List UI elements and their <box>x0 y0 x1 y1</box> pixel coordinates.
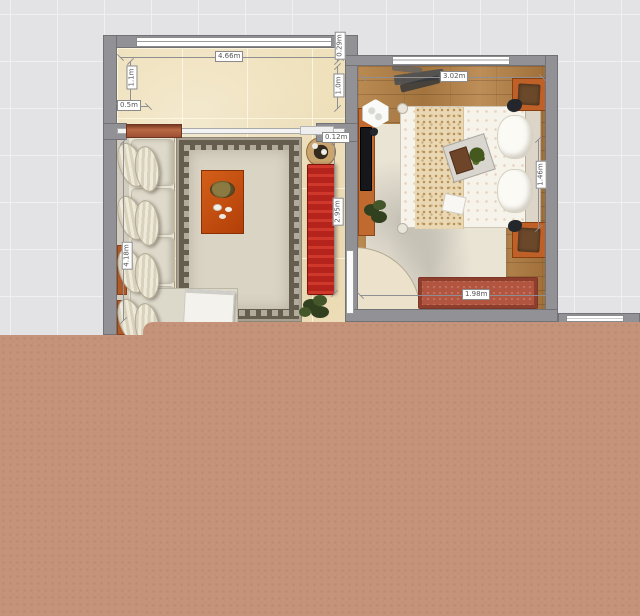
wall-left-living[interactable] <box>103 35 117 335</box>
dimension-label: 2.95m <box>333 197 344 225</box>
floor-plant-living[interactable] <box>299 293 335 323</box>
dimension-label: 1.98m <box>462 289 490 300</box>
dimension-label: 0.12m <box>322 132 350 143</box>
coffee-table[interactable] <box>201 170 244 234</box>
bed-foot-post <box>397 223 408 234</box>
dimension-label: 1.1m <box>126 66 137 90</box>
dimension-label: 4.66m <box>215 51 243 62</box>
dimension-label: 4.18m <box>122 241 133 269</box>
unrendered-area <box>143 322 640 616</box>
floor-plant-bedroom[interactable] <box>361 197 391 229</box>
dimension-label: 3.02m <box>440 71 468 82</box>
window-bottom-right[interactable] <box>566 315 624 322</box>
dimension-line <box>360 295 549 296</box>
window-bedroom-top[interactable] <box>392 56 510 65</box>
bed-foot-post <box>397 103 408 114</box>
dimension-line <box>123 141 124 321</box>
wall-bottom-bedroom[interactable] <box>345 309 558 322</box>
sofa-pillow-set[interactable] <box>119 140 165 192</box>
bedroom-door[interactable] <box>346 250 354 314</box>
dimension-label: 1.0m <box>333 74 344 98</box>
sofa-pillow-set[interactable] <box>119 193 165 245</box>
dimension-label: 1.46m <box>536 160 547 188</box>
television[interactable] <box>360 127 372 191</box>
tv-cabinet-red[interactable] <box>307 164 335 295</box>
tea-cups <box>312 143 318 149</box>
decor-stones[interactable] <box>213 204 222 211</box>
bed-pillow <box>497 115 533 159</box>
entry-console[interactable] <box>126 124 182 138</box>
double-bed[interactable] <box>400 106 538 228</box>
window-living-top[interactable] <box>136 37 332 47</box>
bed-pillow <box>497 169 533 213</box>
wall-right-bedroom[interactable] <box>545 55 558 323</box>
folded-blanket[interactable] <box>183 289 235 326</box>
floorplan-canvas: 4.66m 1.1m 0.5m 0.29m 1.0m 3.02m 4.18m 2… <box>0 0 640 616</box>
fruit-plate[interactable] <box>210 181 235 198</box>
dimension-label: 0.5m <box>117 100 141 111</box>
dimension-label: 0.29m <box>335 31 346 59</box>
